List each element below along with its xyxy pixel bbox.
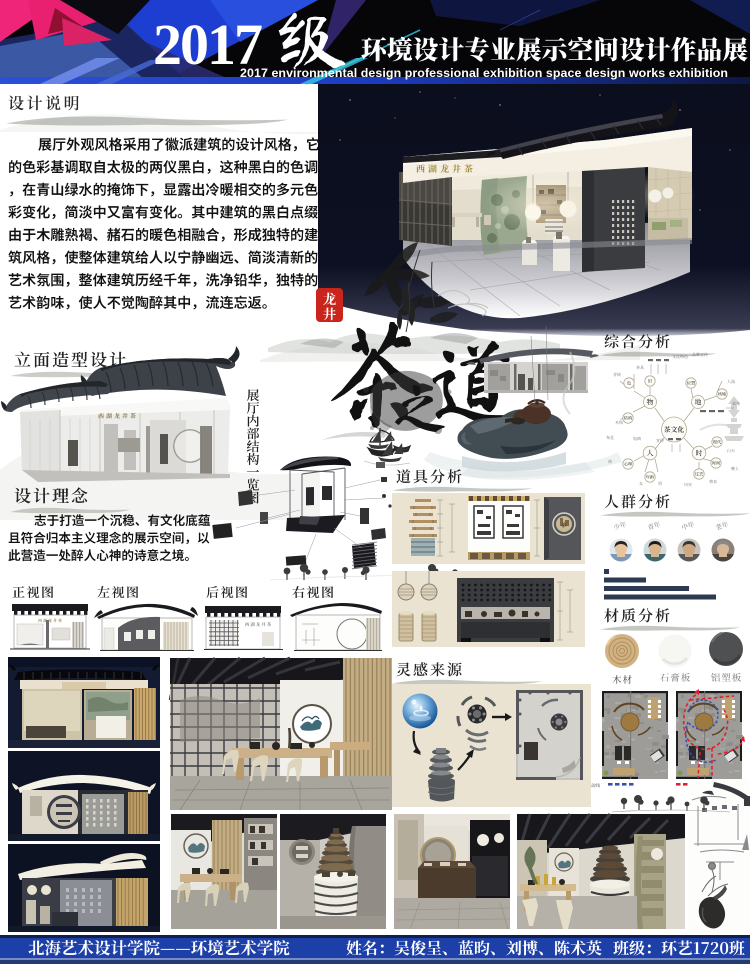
- svg-text:2017 environmental design prof: 2017 environmental design professional e…: [240, 66, 728, 80]
